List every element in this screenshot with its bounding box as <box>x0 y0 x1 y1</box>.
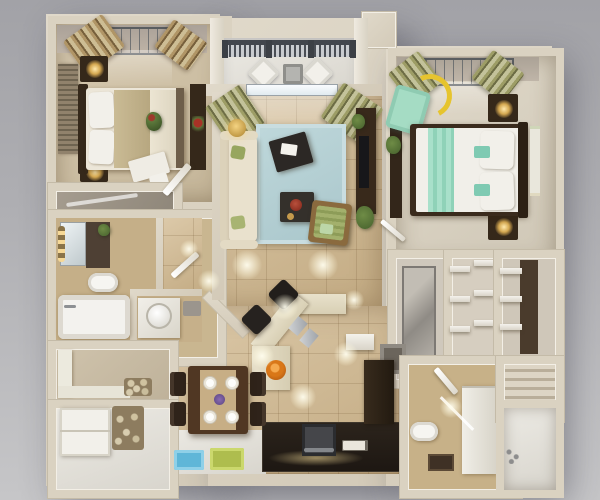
walkin-shelf-left-3 <box>450 326 470 332</box>
balcony-table <box>283 64 303 84</box>
balcony-right-wall <box>354 18 368 94</box>
foyer-mat-green <box>210 448 244 470</box>
kitchen-tall-cabinet <box>364 360 394 424</box>
entry-bench-bottom <box>58 386 130 398</box>
dining-chair-1 <box>170 372 186 396</box>
wardrobe-dark-back <box>520 260 538 354</box>
floor-light-glow <box>198 270 220 292</box>
wc-bath-mat <box>183 301 201 316</box>
balcony-railing-toprail <box>224 40 356 45</box>
mirror-closet-door <box>402 266 436 358</box>
bedroom2-lamp-top <box>495 100 513 118</box>
bathroom2-shower-drain <box>428 454 454 471</box>
wardrobe-shelf-2 <box>500 296 522 302</box>
balcony-railing-post-4 <box>350 40 356 58</box>
bathroom1-right-wall <box>156 218 163 298</box>
bedroom2-accent-pillow-1 <box>474 146 490 158</box>
wc-vessel-sink <box>146 303 172 329</box>
dining-plate-2 <box>225 376 239 390</box>
living-sofa-pillow-1 <box>230 145 246 160</box>
bathroom1-plant <box>98 224 110 236</box>
entry-pebble-decor <box>124 378 152 396</box>
balcony-railing-post-3 <box>308 40 314 58</box>
tv-plant-bottom <box>356 206 374 229</box>
floor-light-glow <box>334 342 358 366</box>
wc-left-wall <box>130 289 137 342</box>
bedroom2-artwork <box>530 126 540 196</box>
living-armchair-pillow <box>319 223 333 235</box>
bedroom2-mint-runner <box>428 128 454 212</box>
living-armchair-cushion <box>313 205 347 240</box>
bedroom1-window-light <box>108 50 172 86</box>
floor-light-glow <box>250 344 274 368</box>
tv-plant-top <box>352 114 365 129</box>
living-tv <box>359 136 369 188</box>
dining-chair-2 <box>170 402 186 426</box>
floor-light-glow <box>180 240 198 258</box>
wc-top-wall <box>130 289 202 296</box>
kitchen-outlets <box>342 440 368 451</box>
hallway-plant <box>146 112 162 131</box>
kitchen-stove-handle <box>304 448 334 452</box>
laundry-pebble-shelf <box>112 406 144 450</box>
coffee-table-papers <box>280 143 297 156</box>
floorplan-scene <box>0 0 600 500</box>
living-floor-lamp <box>228 119 246 137</box>
laundry-cabinet-divider <box>60 430 110 432</box>
bedroom2-plant <box>386 136 401 154</box>
bedroom1-bed-footband <box>176 88 184 168</box>
floor-light-glow <box>272 294 298 320</box>
dining-plate-1 <box>203 376 217 390</box>
walkin-shelf-left-1 <box>450 266 470 272</box>
walkin-shelf-left-2 <box>450 296 470 302</box>
bedroom1-dresser-flowers <box>192 116 204 136</box>
bedroom2-headboard <box>518 122 528 218</box>
living-sofa-arm-bottom <box>220 240 258 249</box>
floor-light-glow <box>290 384 316 410</box>
floor-light-glow <box>440 396 462 418</box>
wardrobe-shelf-1 <box>500 268 522 274</box>
coffee-table-gold-dish <box>287 213 294 220</box>
dining-chair-4 <box>250 402 266 426</box>
foyer-mat-blue <box>174 450 204 470</box>
walkin-shelf-right-2 <box>474 290 494 296</box>
bathroom1-toilet <box>88 273 118 292</box>
bedroom2-accent-pillow-2 <box>474 184 490 196</box>
bathroom1-bathtub <box>58 295 130 339</box>
living-sofa-pillow-2 <box>230 215 246 230</box>
bedroom2-lamp-bottom <box>495 218 513 236</box>
bathroom1-mirror-lights <box>58 226 65 262</box>
coffee-table-red-bowl <box>290 199 302 211</box>
tubroom-faucet-dots <box>505 448 521 464</box>
floor-light-glow <box>344 290 364 310</box>
dining-plate-3 <box>203 410 217 424</box>
floor-light-glow <box>232 250 262 280</box>
dining-centerpiece <box>214 394 225 405</box>
walkin-shelf-right-1 <box>474 260 494 266</box>
bathroom2-toilet <box>410 422 438 441</box>
dining-chair-3 <box>250 372 266 396</box>
balcony-railing-post-2 <box>266 40 272 58</box>
living-sliding-door <box>246 84 338 96</box>
bedroom1-pillow-1 <box>88 91 115 128</box>
laundry-cabinets <box>60 408 110 456</box>
floor-light-glow <box>308 250 338 280</box>
bathroom1-tub-faucet <box>64 305 76 308</box>
balcony-railing-post-1 <box>222 40 228 58</box>
bedroom1-pillow-2 <box>88 129 115 164</box>
balcony-railing-balusters <box>224 44 356 57</box>
bedroom1-lamp-top <box>86 60 104 78</box>
walkin-shelf-right-3 <box>474 320 494 326</box>
wardrobe-shelf-3 <box>500 324 522 330</box>
bedroom1-wardrobe <box>58 64 78 154</box>
bathroom2-vanity <box>462 386 496 474</box>
dining-plate-4 <box>225 410 239 424</box>
